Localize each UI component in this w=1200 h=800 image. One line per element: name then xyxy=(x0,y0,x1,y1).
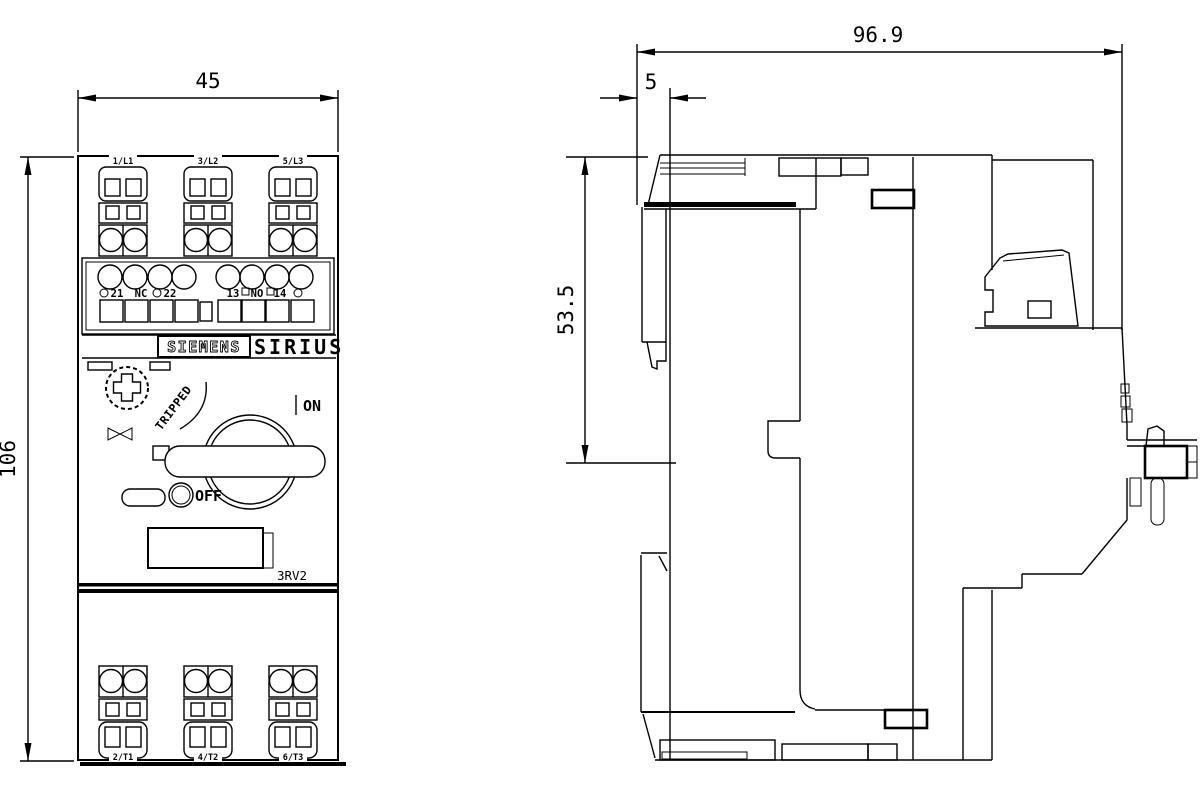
arrow-right-icon xyxy=(320,95,338,102)
aux-nc-label: NC xyxy=(135,288,148,300)
bowtie-marker-icon xyxy=(108,428,132,440)
tripped-label: TRIPPED xyxy=(152,383,194,433)
dim-height-value: 106 xyxy=(0,440,20,478)
brand-logo: SIEMENS xyxy=(167,338,241,356)
side-body-outline xyxy=(641,155,1197,760)
clip-window xyxy=(1028,301,1051,318)
knob-tip xyxy=(1146,426,1164,446)
arrow-up-icon xyxy=(582,157,589,175)
aux-no-label: 14 xyxy=(274,288,287,300)
terminal-label: 6/T3 xyxy=(283,753,303,763)
terminal-group: 3/L2 xyxy=(184,155,232,256)
arrow-up-icon xyxy=(25,157,32,175)
top-terminal-block: 1/L1 3/L2 5/L3 xyxy=(99,155,317,256)
terminal-label: 5/L3 xyxy=(283,157,303,167)
dimension-depth: 96.9 xyxy=(637,23,1122,330)
terminal-label: 1/L1 xyxy=(113,157,133,167)
din-clip-lower xyxy=(641,553,795,758)
label-window: 3RV2 xyxy=(148,528,307,583)
front-view: 45 106 1/L1 xyxy=(0,69,346,766)
rear-clip-block xyxy=(985,250,1078,326)
terminal-group: 1/L1 xyxy=(99,155,147,256)
clip-foot xyxy=(647,342,666,369)
off-label: OFF xyxy=(195,487,222,505)
dim-clip-value: 5 xyxy=(645,70,658,94)
brand-plate: SIEMENS SIRIUS xyxy=(82,335,344,359)
terminal-group: 5/L3 xyxy=(269,155,317,256)
plus-icon xyxy=(114,374,141,401)
bottom-terminal-block: 2/T1 4/T2 6/T3 xyxy=(99,666,317,763)
marker-window-top xyxy=(872,190,914,208)
rotary-handle xyxy=(153,415,325,509)
circle-marker-icon xyxy=(153,289,161,297)
dimension-drawing: 45 106 1/L1 xyxy=(0,0,1200,800)
current-adjustment-dial xyxy=(106,367,148,409)
marker-window-bottom xyxy=(885,710,927,728)
square-marker-icon xyxy=(242,288,249,295)
side-handle-knob xyxy=(1127,425,1197,525)
terminal-label: 2/T1 xyxy=(113,753,133,763)
side-view: 96.9 5 53.5 xyxy=(554,23,1197,760)
terminal-group: 4/T2 xyxy=(184,666,232,763)
dimension-width: 45 xyxy=(78,69,338,152)
arrow-left-icon xyxy=(670,95,688,102)
arrow-down-icon xyxy=(25,743,32,761)
terminal-label: 3/L2 xyxy=(198,157,218,167)
aux-nc-label: 22 xyxy=(164,288,177,300)
arrow-left-icon xyxy=(637,49,655,56)
dim-upper-value: 53.5 xyxy=(554,285,578,336)
dimension-height: 106 xyxy=(0,157,74,761)
off-position-indicator xyxy=(169,483,193,507)
on-label: ON xyxy=(303,397,321,415)
terminal-label: 4/T2 xyxy=(198,753,218,763)
arrow-right-icon xyxy=(1104,49,1122,56)
dim-width-value: 45 xyxy=(195,69,220,93)
aux-no-label: 13 xyxy=(227,288,240,300)
arrow-left-icon xyxy=(78,95,96,102)
terminal-group: 2/T1 xyxy=(99,666,147,763)
series-label: SIRIUS xyxy=(254,335,344,359)
separator-bars xyxy=(78,583,338,593)
terminal-group: 6/T3 xyxy=(269,666,317,763)
model-label: 3RV2 xyxy=(277,568,307,583)
circle-marker-icon xyxy=(294,289,302,297)
aux-nc-label: 21 xyxy=(111,288,124,300)
control-panel: TRIPPED ON OFF xyxy=(88,362,325,509)
aux-no-label: NO xyxy=(251,288,264,300)
din-clip-upper xyxy=(642,158,816,369)
dim-depth-value: 96.9 xyxy=(853,23,904,47)
circle-marker-icon xyxy=(100,289,108,297)
handle-lever xyxy=(165,446,325,477)
dimension-clip: 5 xyxy=(600,70,706,155)
aux-terminal-strip: 21 NC 22 13 NO 14 xyxy=(82,258,334,334)
arrow-right-icon xyxy=(619,95,637,102)
arrow-down-icon xyxy=(582,445,589,463)
